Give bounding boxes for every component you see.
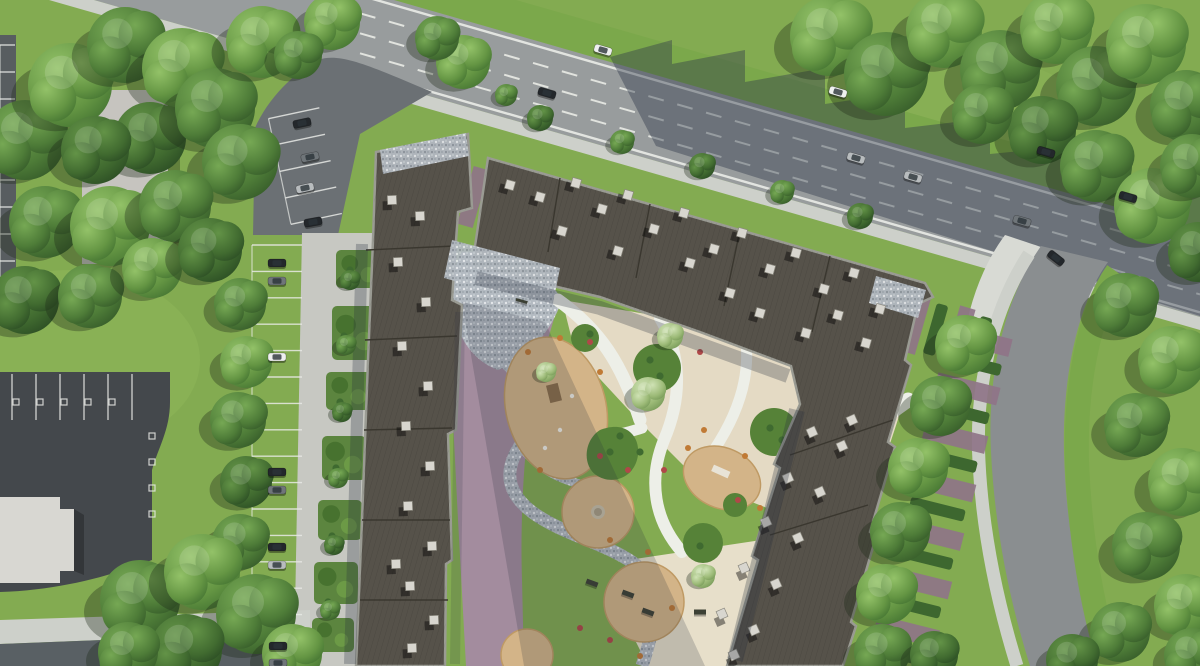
tree-highlight (1074, 141, 1103, 170)
island-shrub (326, 442, 345, 461)
tree-highlight (221, 400, 243, 422)
vent-box (397, 341, 406, 350)
tree-highlight (1126, 522, 1153, 549)
tree-highlight (344, 273, 352, 281)
tree-highlight (1175, 636, 1197, 658)
tree-highlight (230, 464, 251, 485)
tree-highlight (336, 405, 344, 413)
tree-highlight (328, 538, 336, 546)
orange-shrub-dot (757, 505, 763, 511)
orange-shrub-dot (742, 453, 748, 459)
bed (723, 493, 747, 517)
car (268, 277, 286, 287)
car (268, 468, 286, 478)
tree-highlight (23, 197, 52, 226)
tree-highlight (102, 18, 132, 48)
tree-highlight (128, 113, 157, 142)
car-glass (274, 643, 283, 649)
vent-box (429, 615, 438, 624)
vent-box (401, 421, 410, 430)
car (268, 259, 286, 269)
bed (683, 523, 723, 563)
car (268, 561, 286, 571)
car-glass (273, 354, 282, 360)
vent-box (421, 297, 430, 306)
tree-highlight (1117, 403, 1143, 429)
shrub-dot (696, 542, 703, 549)
car (269, 642, 287, 652)
shrub-dot (656, 372, 663, 379)
island-shrub (322, 505, 340, 523)
tree-highlight (900, 447, 924, 471)
tree-highlight (324, 603, 332, 611)
red-flower-dot (625, 467, 631, 473)
vent-box (423, 381, 432, 390)
tree-highlight (865, 632, 887, 654)
orange-shrub-dot (597, 369, 603, 375)
tree-highlight (694, 157, 704, 167)
bench (694, 610, 706, 617)
tree-highlight (340, 338, 348, 346)
tree-highlight (662, 327, 672, 337)
vent-box (570, 177, 581, 188)
tree-highlight (217, 135, 247, 165)
shrub-dot (636, 448, 643, 455)
tree-highlight (71, 274, 97, 300)
tree-highlight (947, 324, 971, 348)
tree-highlight (116, 572, 148, 604)
vent-box (724, 287, 735, 298)
tree-highlight (852, 207, 862, 217)
vent-box (754, 307, 765, 318)
tree-highlight (240, 17, 269, 46)
neighbor-building-shadow-2 (74, 509, 84, 575)
car-glass (274, 660, 283, 666)
facade-shade-west-wing-inner (455, 312, 460, 664)
red-flower-dot (735, 497, 741, 503)
vent-box (556, 225, 567, 236)
tree-highlight (230, 344, 251, 365)
tree-highlight (134, 247, 158, 271)
tree-highlight (1152, 336, 1179, 363)
tree-highlight (315, 2, 337, 24)
tree-highlight (638, 382, 652, 396)
car-glass (273, 260, 282, 266)
tree-highlight (110, 631, 134, 655)
vent-box (684, 257, 695, 268)
vent-box (407, 643, 416, 652)
car (269, 659, 287, 666)
site-plan-canvas (0, 0, 1200, 666)
car-glass (273, 278, 282, 284)
tree-highlight (191, 228, 217, 254)
vent-box (848, 267, 859, 278)
car (268, 353, 286, 363)
tree-highlight (532, 109, 542, 119)
tree-highlight (499, 87, 508, 96)
car-glass (273, 469, 282, 475)
orange-shrub-dot (701, 427, 707, 433)
orange-shrub-dot (685, 445, 691, 451)
tree-highlight (540, 365, 548, 373)
tree-highlight (868, 573, 892, 597)
tree-highlight (1173, 144, 1199, 170)
red-flower-dot (587, 339, 593, 345)
bed (571, 324, 599, 352)
tree-highlight (1106, 283, 1132, 309)
tree-highlight (1167, 584, 1193, 610)
vent-box (736, 227, 747, 238)
orange-shrub-dot (557, 335, 563, 341)
tree-highlight (976, 42, 1008, 74)
island-shrub (318, 567, 336, 585)
tree-highlight (696, 568, 706, 578)
tree-highlight (284, 38, 303, 57)
vent-box (596, 203, 607, 214)
shrub-dot (646, 356, 653, 363)
shrub-dot (586, 330, 593, 337)
island-shrub (331, 377, 348, 394)
tree-highlight (1034, 3, 1063, 32)
tree-highlight (1102, 611, 1126, 635)
tree-highlight (921, 3, 951, 33)
tree-highlight (75, 126, 102, 153)
vent-box (415, 211, 424, 220)
tree-highlight (179, 545, 209, 575)
vent-box (405, 581, 414, 590)
car (268, 543, 286, 553)
car-glass (273, 544, 282, 550)
tree-highlight (922, 385, 946, 409)
tree-highlight (1162, 458, 1189, 485)
car (268, 486, 286, 496)
vent-box (387, 195, 396, 204)
car-glass (273, 562, 282, 568)
vent-box (648, 223, 659, 234)
tree-highlight (332, 471, 340, 479)
tree-highlight (615, 134, 625, 144)
tree-highlight (806, 8, 838, 40)
tree-highlight (158, 40, 190, 72)
shrub-dot (766, 424, 773, 431)
tree-highlight (153, 181, 182, 210)
tree-highlight (86, 198, 118, 230)
vent-box (800, 327, 811, 338)
tree-highlight (1122, 16, 1154, 48)
tree-highlight (861, 45, 895, 79)
vent-box (612, 245, 623, 256)
island-shrub (336, 315, 356, 335)
vent-box (425, 461, 434, 470)
vent-box (874, 303, 885, 314)
tree-highlight (164, 625, 193, 654)
tree-highlight (882, 511, 906, 535)
vent-box (860, 337, 871, 348)
vent-box (764, 263, 775, 274)
tree-highlight (964, 93, 988, 117)
vent-box (427, 541, 436, 550)
bench-shadow (694, 615, 706, 617)
tree-highlight (191, 80, 223, 112)
vent-box (790, 247, 801, 258)
vent-box (818, 283, 829, 294)
vent-box (708, 243, 719, 254)
neighbor-building-roof-bottomleft (0, 497, 74, 583)
tree-highlight (775, 184, 785, 194)
aerial-render-image (0, 0, 1200, 666)
car-glass (273, 487, 282, 493)
vent-box (622, 189, 633, 200)
vent-box (393, 257, 402, 266)
tree-highlight (232, 586, 264, 618)
shrub-dot (616, 432, 623, 439)
tree-highlight (1056, 642, 1077, 663)
vent-box (403, 501, 412, 510)
vent-box (678, 207, 689, 218)
vent-box (504, 179, 515, 190)
vent-box (534, 191, 545, 202)
tree-highlight (224, 286, 245, 307)
tree-highlight (1164, 81, 1193, 110)
tree-highlight (1022, 106, 1049, 133)
tree-highlight (424, 23, 442, 41)
tree-highlight (5, 276, 32, 303)
vent-box (391, 559, 400, 568)
shrub-dot (606, 448, 613, 455)
tree-highlight (920, 638, 939, 657)
red-flower-dot (661, 467, 667, 473)
bench-seat (694, 610, 706, 615)
vent-box (832, 309, 843, 320)
